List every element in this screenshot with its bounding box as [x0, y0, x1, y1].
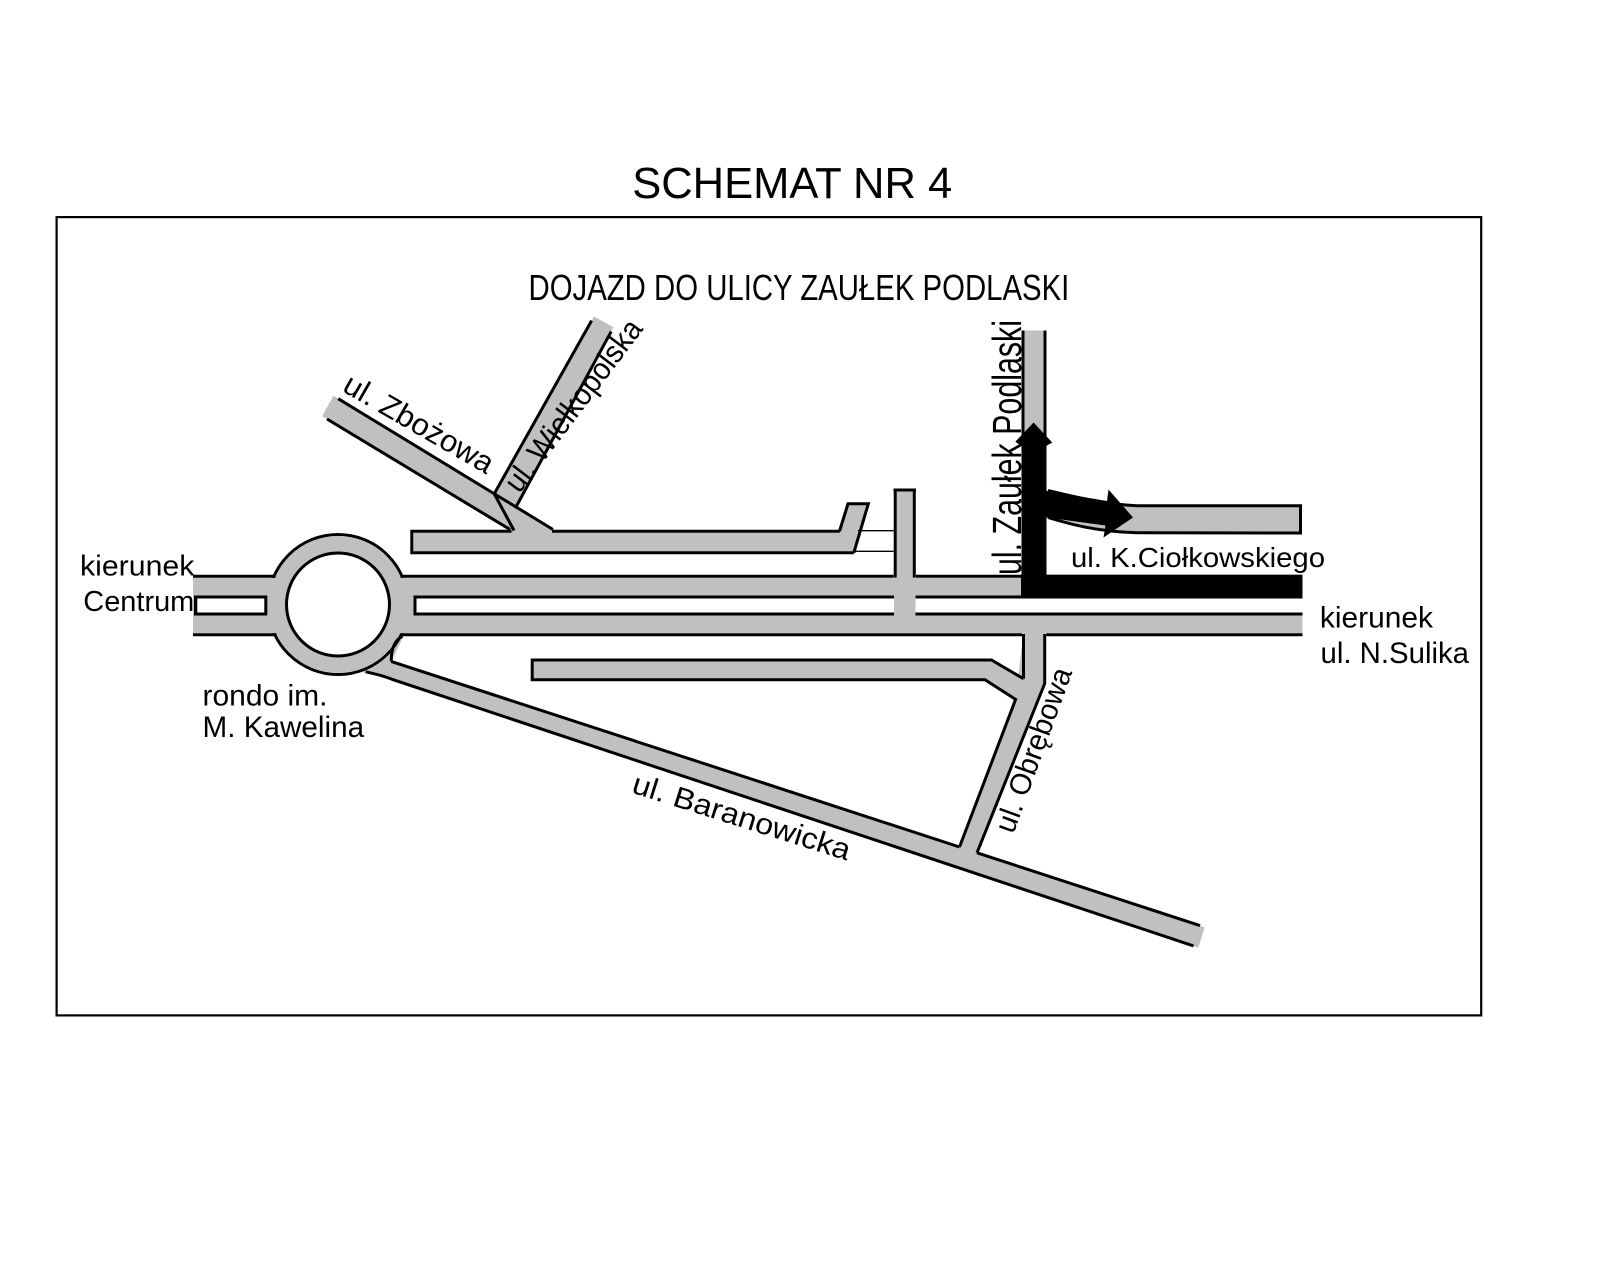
svg-text:DOJAZD DO ULICY ZAUŁEK PODLASK: DOJAZD DO ULICY ZAUŁEK PODLASKI — [529, 268, 1070, 309]
svg-text:SCHEMAT NR 4: SCHEMAT NR 4 — [632, 160, 952, 208]
svg-text:ul. N.Sulika: ul. N.Sulika — [1321, 637, 1470, 670]
svg-text:kierunek: kierunek — [1320, 602, 1433, 635]
svg-text:kierunek: kierunek — [80, 551, 195, 583]
svg-text:ul. Zaułek Podlaski: ul. Zaułek Podlaski — [983, 320, 1030, 575]
svg-text:Centrum: Centrum — [83, 586, 194, 618]
svg-text:rondo im.: rondo im. — [203, 680, 328, 713]
svg-text:ul. K.Ciołkowskiego: ul. K.Ciołkowskiego — [1071, 542, 1325, 573]
svg-text:M. Kawelina: M. Kawelina — [203, 711, 365, 744]
